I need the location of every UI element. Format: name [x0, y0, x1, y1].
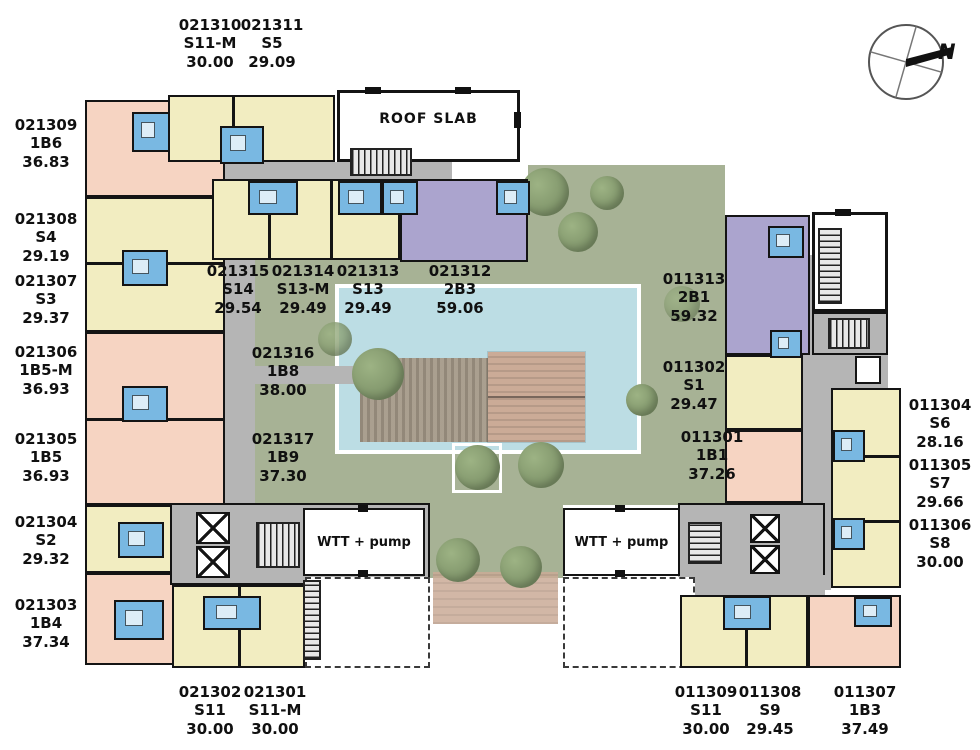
unit-id: 021307	[15, 272, 78, 290]
unit-label-021306: 0213061B5-M36.93	[15, 343, 78, 398]
stairs	[350, 148, 412, 176]
unit-label-011307: 0113071B337.49	[834, 683, 897, 738]
unit-id: 011307	[834, 683, 897, 701]
unit-label-011302: 011302S129.47	[663, 358, 726, 413]
unit-label-011301: 0113011B137.26	[681, 428, 744, 483]
unit-label-021308: 021308S429.19	[15, 210, 78, 265]
corridor-bottom-right	[678, 575, 825, 595]
unit-area: 30.00	[909, 553, 972, 571]
open-slab-right	[563, 577, 695, 668]
bathroom-fixture	[338, 181, 382, 215]
stairs	[303, 580, 321, 660]
tree	[626, 384, 658, 416]
unit-label-021302: 021302S1130.00	[179, 683, 242, 738]
unit-type: S5	[241, 34, 304, 52]
unit-type: S7	[909, 474, 972, 492]
unit-id: 021309	[15, 116, 78, 134]
unit-label-021311: 021311S529.09	[241, 16, 304, 71]
unit-type: 1B8	[252, 362, 315, 380]
unit-area: 36.83	[15, 153, 78, 171]
unit-type: S4	[15, 228, 78, 246]
unit-type: S3	[15, 290, 78, 308]
bathroom-fixture	[203, 596, 261, 630]
north-label: N	[938, 40, 956, 64]
unit-id: 021317	[252, 430, 315, 448]
stairs	[828, 318, 870, 349]
unit-id: 011302	[663, 358, 726, 376]
unit-id: 021313	[337, 262, 400, 280]
unit-id: 021314	[272, 262, 335, 280]
tree	[518, 442, 564, 488]
unit-type: S11-M	[244, 701, 307, 719]
unit-label-021313: 021313S1329.49	[337, 262, 400, 317]
unit-id: 021301	[244, 683, 307, 701]
unit-type: S6	[909, 414, 972, 432]
bathroom-fixture	[122, 386, 168, 422]
bathroom-fixture	[382, 181, 418, 215]
tree	[455, 445, 500, 490]
unit-area: 30.00	[179, 720, 242, 738]
unit-label-021304: 021304S229.32	[15, 513, 78, 568]
bathroom-fixture	[854, 597, 892, 627]
unit-type: S2	[15, 531, 78, 549]
tree	[436, 538, 480, 582]
bathroom-fixture	[723, 596, 771, 630]
unit-id: 021310	[179, 16, 242, 34]
unit-divider	[330, 179, 333, 260]
unit-label-021316: 0213161B838.00	[252, 344, 315, 399]
unit-area: 29.19	[15, 247, 78, 265]
unit-area: 30.00	[675, 720, 738, 738]
unit-id: 021306	[15, 343, 78, 361]
elevator	[196, 546, 230, 578]
unit-label-021317: 0213171B937.30	[252, 430, 315, 485]
bathroom-fixture	[122, 250, 168, 286]
tree	[558, 212, 598, 252]
unit-area: 29.47	[663, 395, 726, 413]
unit-type: S14	[207, 280, 270, 298]
north-text: N	[938, 40, 956, 64]
unit-label-011304: 011304S628.16	[909, 396, 972, 451]
unit-area: 37.30	[252, 467, 315, 485]
unit-type: 2B1	[663, 288, 726, 306]
unit-id: 021303	[15, 596, 78, 614]
bathroom-fixture	[114, 600, 164, 640]
unit-type: S11	[179, 701, 242, 719]
unit-area: 29.49	[337, 299, 400, 317]
unit-area: 38.00	[252, 381, 315, 399]
elevator	[750, 545, 780, 574]
unit-id: 021302	[179, 683, 242, 701]
unit-area: 29.09	[241, 53, 304, 71]
unit-type: S8	[909, 534, 972, 552]
unit-area: 30.00	[179, 53, 242, 71]
unit-label-021315: 021315S1429.54	[207, 262, 270, 317]
unit-label-021312: 0213122B359.06	[429, 262, 492, 317]
unit-type: 1B4	[15, 614, 78, 632]
bathroom-fixture	[768, 226, 804, 258]
unit-id: 021308	[15, 210, 78, 228]
unit-type: S1	[663, 376, 726, 394]
unit-label-011313: 0113132B159.32	[663, 270, 726, 325]
tree	[500, 546, 542, 588]
unit-area: 37.26	[681, 465, 744, 483]
unit-id: 011308	[739, 683, 802, 701]
unit-id: 011305	[909, 456, 972, 474]
unit-area: 29.45	[739, 720, 802, 738]
bathroom-fixture	[220, 126, 264, 164]
bathroom-fixture	[833, 430, 865, 462]
unit-type: S11-M	[179, 34, 242, 52]
unit-area: 36.93	[15, 380, 78, 398]
unit-area: 28.16	[909, 433, 972, 451]
wall-opening	[835, 209, 851, 216]
unit-label-021305: 0213051B536.93	[15, 430, 78, 485]
unit-area: 29.49	[272, 299, 335, 317]
unit-label-011305: 011305S729.66	[909, 456, 972, 511]
wtt-pump-label-right: WTT + pump	[563, 508, 680, 576]
bathroom-fixture	[118, 522, 164, 558]
unit-label-021307: 021307S329.37	[15, 272, 78, 327]
unit-label-021310: 021310S11-M30.00	[179, 16, 242, 71]
unit-id: 011309	[675, 683, 738, 701]
bathroom-fixture	[248, 181, 298, 215]
wtt-pump-label-left: WTT + pump	[303, 508, 425, 576]
unit-type: 1B6	[15, 134, 78, 152]
unit-id: 021312	[429, 262, 492, 280]
unit-label-021301: 021301S11-M30.00	[244, 683, 307, 738]
unit-type: S11	[675, 701, 738, 719]
unit-id: 021304	[15, 513, 78, 531]
unit-label-021309: 0213091B636.83	[15, 116, 78, 171]
unit-id: 011313	[663, 270, 726, 288]
unit-block-011302	[725, 355, 803, 430]
unit-label-011306: 011306S830.00	[909, 516, 972, 571]
stairs	[688, 522, 722, 564]
elevator	[196, 512, 230, 544]
unit-id: 021315	[207, 262, 270, 280]
tree	[352, 348, 404, 400]
unit-area: 29.54	[207, 299, 270, 317]
bathroom-fixture	[833, 518, 865, 550]
unit-area: 29.66	[909, 493, 972, 511]
unit-area: 29.32	[15, 550, 78, 568]
unit-id: 021305	[15, 430, 78, 448]
unit-id: 021311	[241, 16, 304, 34]
unit-label-021303: 0213031B437.34	[15, 596, 78, 651]
unit-type: 1B5-M	[15, 361, 78, 379]
pavilion-divider	[488, 396, 585, 398]
elevator	[750, 514, 780, 543]
unit-area: 37.34	[15, 633, 78, 651]
unit-id: 021316	[252, 344, 315, 362]
bathroom-fixture	[132, 112, 170, 152]
wtt-pump-text: WTT + pump	[317, 535, 411, 550]
stairs	[818, 228, 842, 304]
unit-area: 59.06	[429, 299, 492, 317]
unit-type: S9	[739, 701, 802, 719]
roof-slab-label: ROOF SLAB	[337, 90, 520, 148]
unit-area: 29.37	[15, 309, 78, 327]
unit-label-011309: 011309S1130.00	[675, 683, 738, 738]
roof-slab-text: ROOF SLAB	[379, 111, 478, 127]
stairs	[256, 522, 300, 568]
unit-id: 011301	[681, 428, 744, 446]
unit-type: 1B1	[681, 446, 744, 464]
bathroom-fixture	[496, 181, 530, 215]
floor-plan: ROOF SLAB WTT + pump WTT + pump N 021310…	[0, 0, 980, 750]
unit-type: S13	[337, 280, 400, 298]
unit-type: S13-M	[272, 280, 335, 298]
unit-id: 011304	[909, 396, 972, 414]
unit-area: 59.32	[663, 307, 726, 325]
bathroom-fixture	[770, 330, 802, 358]
open-slab-left	[305, 577, 430, 668]
unit-type: 1B5	[15, 448, 78, 466]
unit-type: 1B3	[834, 701, 897, 719]
unit-block-011304-011305-011306	[831, 388, 901, 588]
wtt-pump-text: WTT + pump	[575, 535, 669, 550]
unit-area: 37.49	[834, 720, 897, 738]
lobby-right-closet	[855, 356, 881, 384]
tree	[318, 322, 352, 356]
unit-label-011308: 011308S929.45	[739, 683, 802, 738]
unit-id: 011306	[909, 516, 972, 534]
unit-label-021314: 021314S13-M29.49	[272, 262, 335, 317]
unit-area: 30.00	[244, 720, 307, 738]
unit-area: 36.93	[15, 467, 78, 485]
tree	[590, 176, 624, 210]
unit-type: 2B3	[429, 280, 492, 298]
unit-type: 1B9	[252, 448, 315, 466]
